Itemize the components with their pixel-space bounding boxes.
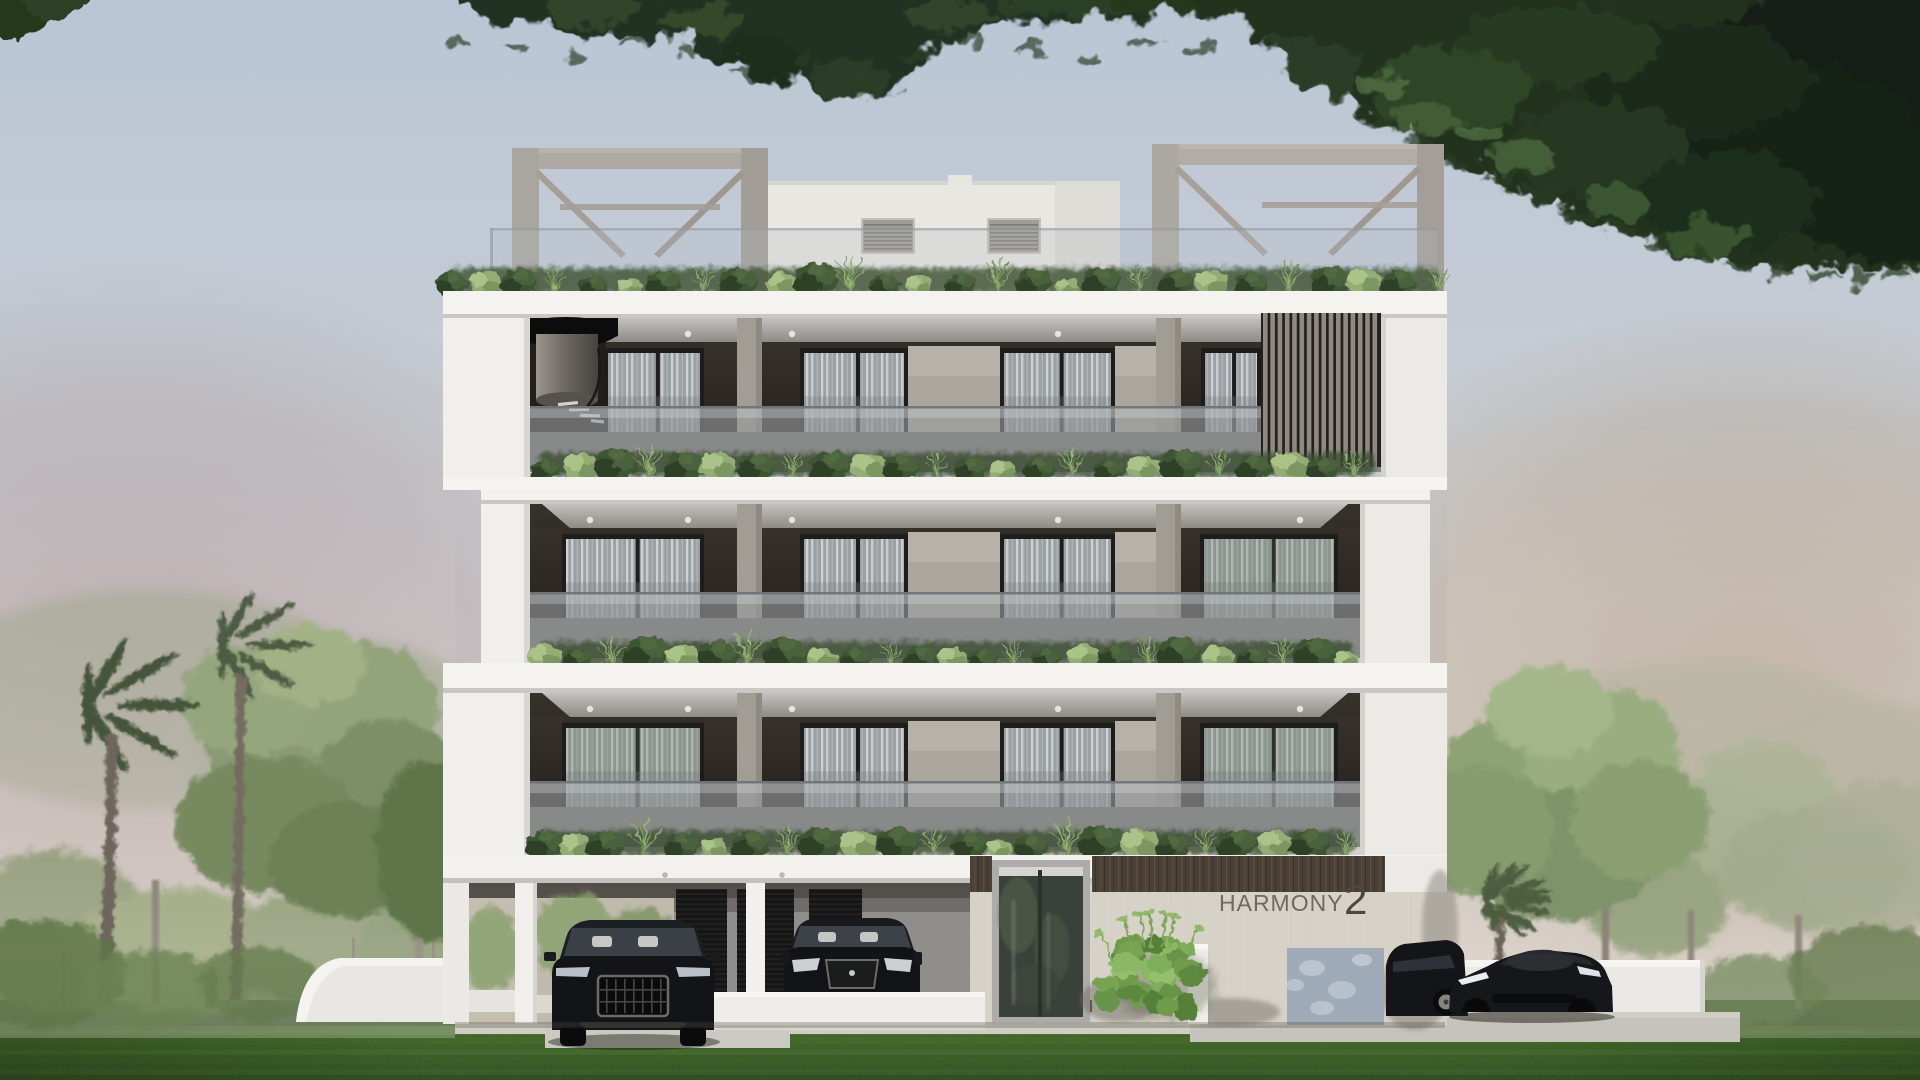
svg-text:2: 2: [1344, 876, 1367, 923]
svg-text:HARMONY: HARMONY: [1219, 890, 1344, 916]
